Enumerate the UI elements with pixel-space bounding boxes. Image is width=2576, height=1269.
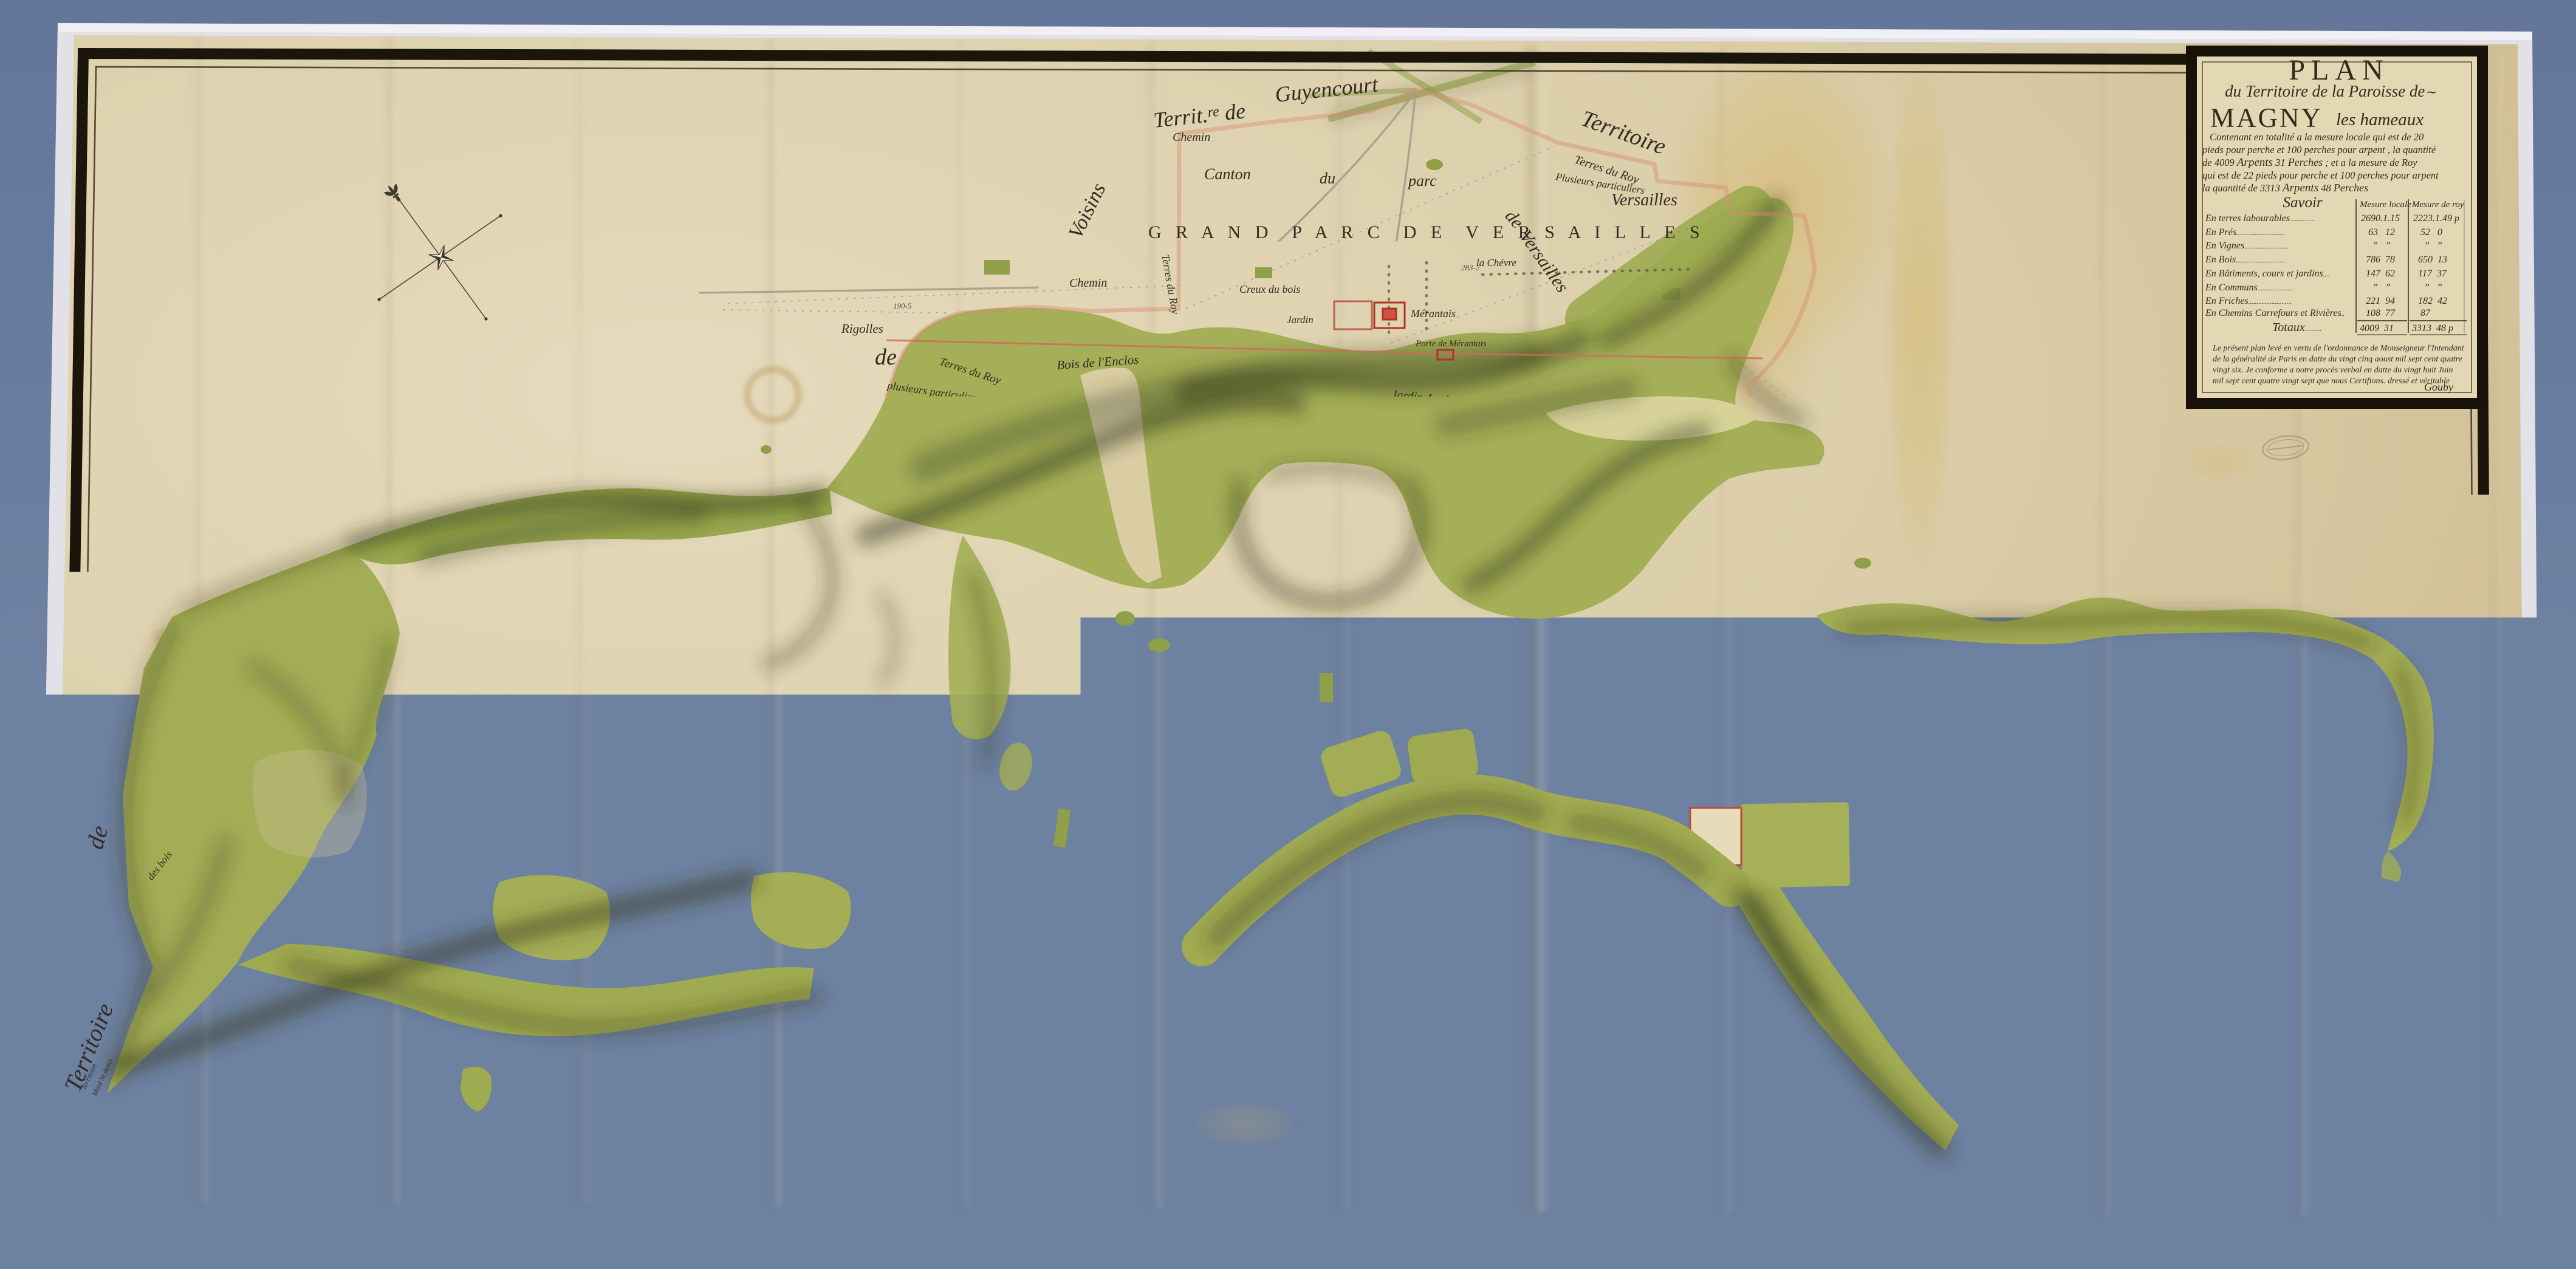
svg-text:Mesure de roy: Mesure de roy <box>2223 1123 2297 1138</box>
svg-text:Brouessy: Brouessy <box>1091 597 1127 607</box>
svg-text:Orme aux bergers: Orme aux bergers <box>1391 789 1453 798</box>
svg-text:Collège de la marche: Collège de la marche <box>2064 861 2143 871</box>
svg-text:Port royal: Port royal <box>462 987 498 996</box>
svg-text:Porte de Mérantais: Porte de Mérantais <box>1415 339 1487 349</box>
svg-text:Contenant en totalité a la mes: Contenant en totalité a la mesure locale… <box>2210 131 2424 143</box>
svg-text:du: du <box>1320 169 1335 187</box>
svg-text:Etang de: Etang de <box>461 977 492 987</box>
svg-text:2223.1.49 p: 2223.1.49 p <box>2413 213 2459 224</box>
svg-text:la quantité de 3313 Arpents 48: la quantité de 3313 Arpents 48 Perches <box>2202 182 2368 194</box>
svg-text:63 12: 63 12 <box>2368 227 2395 238</box>
svg-text:Remy: Remy <box>2082 913 2142 943</box>
svg-text:279-6: 279-6 <box>1877 629 1896 638</box>
svg-text:147 62: 147 62 <box>2366 269 2395 279</box>
svg-text:221 94: 221 94 <box>2366 296 2395 306</box>
svg-text:Gouby: Gouby <box>2424 381 2453 393</box>
svg-text:Mesure locale: Mesure locale <box>2359 200 2411 210</box>
svg-text:” ”: ” ” <box>2372 241 2391 251</box>
svg-text:Bois: Bois <box>1152 1074 1168 1084</box>
svg-text:Chemin: Chemin <box>1173 131 1210 144</box>
svg-text:Cresselix: Cresselix <box>2154 757 2188 767</box>
svg-text:74-8: 74-8 <box>2181 825 2196 834</box>
svg-text:Buloyer: Buloyer <box>707 771 738 781</box>
svg-text:196-10: 196-10 <box>559 840 581 849</box>
svg-text:283-2: 283-2 <box>1461 263 1480 272</box>
svg-text:Villeneuve: Villeneuve <box>1536 631 1576 641</box>
svg-text:vingt six. Je conforme a notre: vingt six. Je conforme a notre procès ve… <box>2213 366 2453 375</box>
svg-text:Perches: Perches <box>2398 1093 2436 1106</box>
svg-text:les hameaux: les hameaux <box>2336 110 2424 129</box>
svg-text:28-18: 28-18 <box>638 490 657 499</box>
svg-text:37-9: 37-9 <box>2114 733 2129 742</box>
svg-text:les Molleray: les Molleray <box>644 850 699 862</box>
svg-text:de: de <box>2162 785 2173 799</box>
svg-text:Creux du bois: Creux du bois <box>1239 283 1300 295</box>
svg-text:Perches: Perches <box>2433 1139 2470 1152</box>
svg-text:Romainville: Romainville <box>911 888 958 898</box>
svg-text:Chapelle la reyne: Chapelle la reyne <box>1967 741 2032 751</box>
svg-text:4009 31: 4009 31 <box>2360 323 2394 333</box>
svg-text:Friche de: Friche de <box>1744 914 1778 923</box>
svg-text:de la généralité de Paris en d: de la généralité de Paris en datte du vi… <box>2213 355 2462 364</box>
svg-text:Savoir: Savoir <box>2283 194 2323 211</box>
svg-text:Mesure de roy: Mesure de roy <box>2411 200 2464 210</box>
svg-text:Bois de Voisins: Bois de Voisins <box>2120 615 2188 627</box>
svg-text:” ”: ” ” <box>2424 282 2442 293</box>
svg-text:” ”: ” ” <box>2424 241 2442 251</box>
svg-text:Jardin: Jardin <box>1287 314 1314 326</box>
svg-text:du Territoire de la Paroisse d: du Territoire de la Paroisse de∼ <box>2225 82 2436 100</box>
svg-text:Canton: Canton <box>2058 838 2102 854</box>
svg-text:Rigolles: Rigolles <box>841 321 883 336</box>
svg-text:de 4009 Arpents 31 Perches ; e: de 4009 Arpents 31 Perches ; et a la mes… <box>2202 156 2417 169</box>
svg-text:Mérantais: Mérantais <box>1410 307 1456 320</box>
svg-text:En Chemins Carrefours et Riviè: En Chemins Carrefours et Rivières.. <box>2205 308 2345 318</box>
svg-text:Gomberville: Gomberville <box>1819 679 1868 689</box>
svg-text:Mesure du lieu: Mesure du lieu <box>2211 1078 2287 1092</box>
svg-text:786 78: 786 78 <box>2366 255 2395 265</box>
svg-text:pieds pour perche et 100 perch: pieds pour perche et 100 perches pour ar… <box>2202 144 2436 156</box>
svg-text:Chemin: Chemin <box>1069 276 1107 290</box>
svg-text:Chateau-fort: Chateau-fort <box>2119 580 2239 606</box>
svg-text:de: de <box>875 344 897 370</box>
svg-text:MAGNY: MAGNY <box>2210 103 2323 133</box>
svg-text:Canton: Canton <box>1204 165 1251 183</box>
svg-text:182 42: 182 42 <box>2418 296 2447 306</box>
svg-text:Croix des bois: Croix des bois <box>1920 1168 1972 1178</box>
svg-text:2690.1.15: 2690.1.15 <box>2361 213 2400 224</box>
svg-text:117 37: 117 37 <box>2418 269 2447 279</box>
svg-text:Versailles: Versailles <box>1611 191 1677 210</box>
svg-text:de: de <box>418 1005 441 1032</box>
svg-text:S.te Lanite: S.te Lanite <box>2241 836 2281 848</box>
svg-text:la Chévre: la Chévre <box>1476 257 1516 269</box>
svg-text:mil sept cent quatre vingt sep: mil sept cent quatre vingt sept que nous… <box>2213 377 2450 386</box>
svg-text:108 77: 108 77 <box>2366 308 2396 318</box>
svg-text:En Bâtiments, cours et jardins: En Bâtiments, cours et jardins.... <box>2205 269 2330 279</box>
svg-text:” ”: ” ” <box>2372 282 2391 293</box>
svg-text:Gomberville: Gomberville <box>1736 934 1779 943</box>
svg-text:Parc angl.: Parc angl. <box>513 957 552 967</box>
svg-text:138-17: 138-17 <box>1355 816 1377 825</box>
svg-text:190-5: 190-5 <box>893 301 912 310</box>
svg-text:3313 48 p: 3313 48 p <box>2411 323 2453 333</box>
svg-text:saint: saint <box>524 997 572 1025</box>
svg-text:les Granges: les Granges <box>499 892 543 901</box>
svg-text:650 13: 650 13 <box>2418 255 2447 265</box>
svg-text:Echelle de: Echelle de <box>1946 1137 2000 1152</box>
svg-text:qui est de 22 pieds pour perch: qui est de 22 pieds pour perche et 100 p… <box>2202 169 2439 181</box>
svg-text:Le présent plan levé en vertu: Le présent plan levé en vertu de l'ordon… <box>2212 344 2465 353</box>
svg-text:Echelle de: Echelle de <box>1945 1091 1999 1106</box>
svg-text:Etang de Méranot: Etang de Méranot <box>1555 406 1651 419</box>
svg-text:MAGNY: MAGNY <box>1298 556 1383 575</box>
svg-text:87: 87 <box>2420 308 2431 318</box>
svg-text:de: de <box>1293 965 1317 993</box>
svg-text:G R A N D P A R C D E V E R: G R A N D P A R C D E V E R S A I L L E … <box>1148 222 1705 242</box>
svg-text:parc: parc <box>1407 172 1437 190</box>
svg-text:52 0: 52 0 <box>2420 227 2442 238</box>
svg-text:Rodon et de: Rodon et de <box>1738 924 1780 933</box>
